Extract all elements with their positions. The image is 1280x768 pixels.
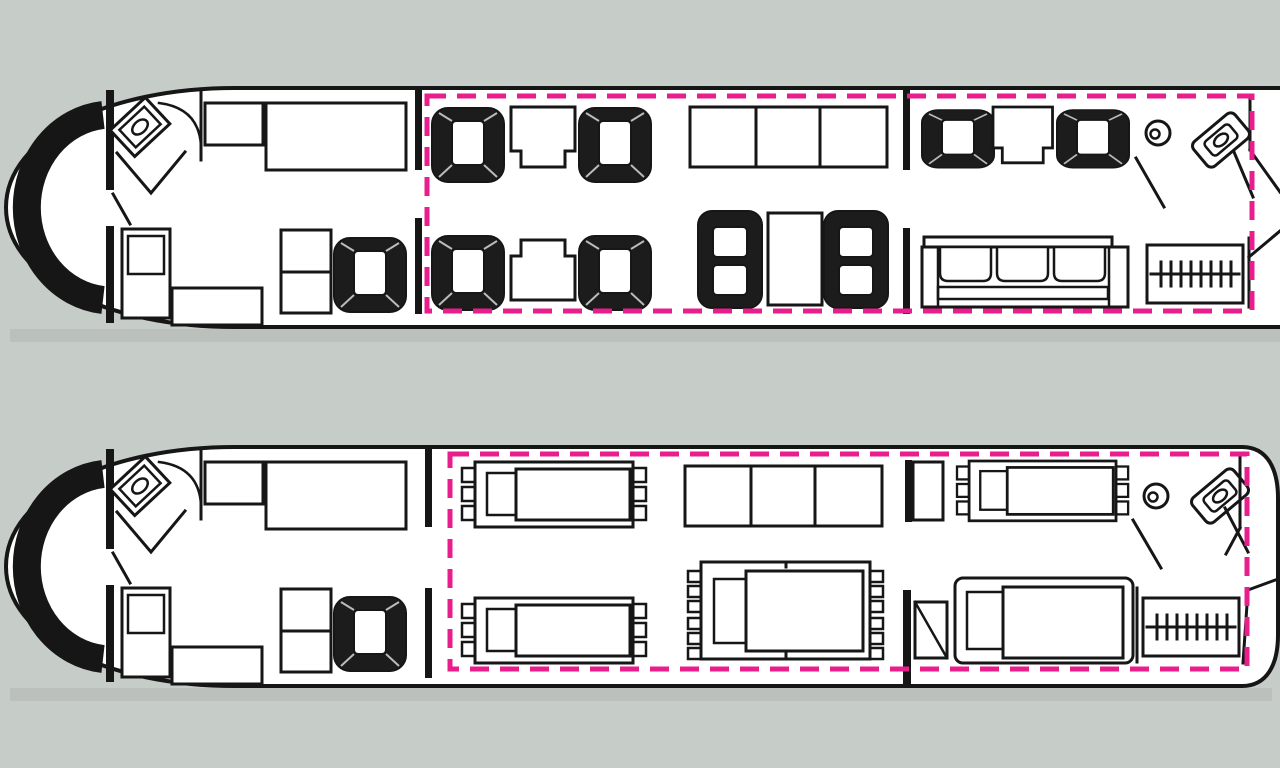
- three-seat-divan: [922, 237, 1128, 307]
- aircraft-night-configuration: [6, 447, 1278, 686]
- club-seat: [432, 108, 504, 182]
- single-berth: [462, 462, 646, 527]
- small-cabinet: [913, 462, 943, 520]
- club-seat: [432, 236, 504, 310]
- wardrobe-closet: [1143, 598, 1239, 656]
- double-berth: [688, 562, 883, 659]
- side-table: [511, 107, 575, 167]
- partition: [903, 228, 910, 314]
- three-bay-credenza: [685, 466, 882, 526]
- sink-icon: [1146, 121, 1170, 145]
- club-seat: [579, 108, 651, 182]
- single-berth: [462, 598, 646, 663]
- club-seat: [922, 110, 994, 168]
- conference-table: [768, 213, 822, 305]
- three-bay-credenza: [690, 107, 887, 167]
- cabin-floorplan-diagram: [0, 0, 1280, 768]
- fuselage-shadow: [10, 688, 1272, 701]
- conference-seats: [698, 211, 762, 308]
- aircraft-day-configuration: [6, 88, 1280, 327]
- club-seat: [579, 236, 651, 310]
- club-seat: [1057, 110, 1129, 168]
- wardrobe-closet: [1147, 245, 1243, 303]
- partition: [903, 88, 910, 170]
- partition: [905, 460, 912, 522]
- partition: [415, 218, 422, 314]
- partition: [425, 447, 432, 527]
- partition: [415, 88, 422, 170]
- sink-icon: [1144, 484, 1168, 508]
- conference-seats: [824, 211, 888, 308]
- door-panel: [915, 602, 947, 658]
- single-berth: [955, 578, 1133, 663]
- fuselage-shadow: [10, 329, 1280, 342]
- partition: [425, 588, 432, 678]
- side-table: [993, 107, 1053, 163]
- side-table: [511, 240, 575, 300]
- single-berth: [957, 461, 1128, 521]
